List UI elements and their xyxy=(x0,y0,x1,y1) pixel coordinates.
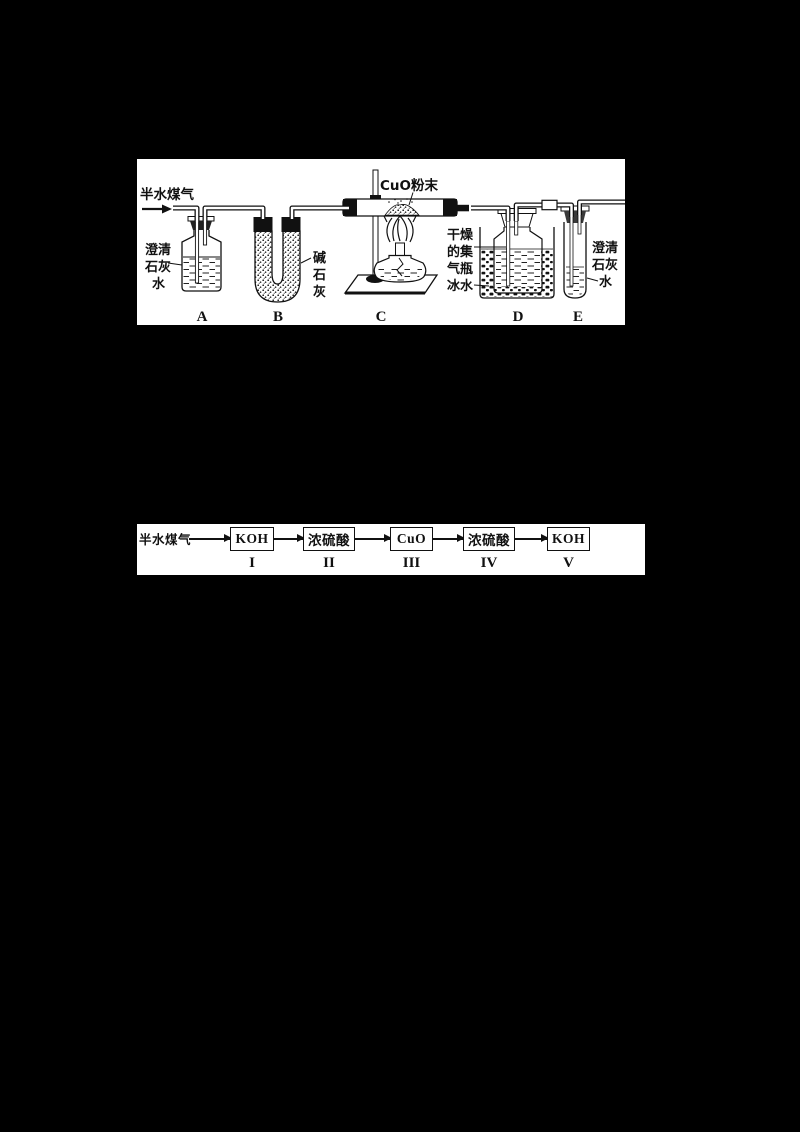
limewater-e xyxy=(566,267,584,296)
label-b-pointer xyxy=(301,258,311,263)
reaction-tube-right-stopper xyxy=(443,199,457,216)
flow-box-4-h2so4: 浓硫酸 xyxy=(463,527,515,551)
alcohol-lamp xyxy=(374,216,426,282)
vessel-b-u-tube: 碱 石 灰 B xyxy=(254,217,327,325)
reaction-tube-outlet-stub xyxy=(457,205,469,212)
vessel-a-gas-washing-bottle: 澄清 石灰 水 A xyxy=(144,217,221,326)
label-a-line3: 水 xyxy=(152,276,166,292)
label-b-line3: 灰 xyxy=(313,284,326,300)
flow-step-numeral-1: I xyxy=(230,555,274,572)
label-b-line2: 石 xyxy=(312,268,326,283)
flow-arrow-3 xyxy=(355,538,390,540)
u-tube-right-stopper xyxy=(282,217,301,232)
apparatus-figure: 半水煤气 澄清 石灰 水 A xyxy=(137,159,625,325)
flow-input-label: 半水煤气 xyxy=(139,529,191,548)
page-background: 半水煤气 澄清 石灰 水 A xyxy=(0,0,800,1132)
tube-joint-connector xyxy=(542,200,557,209)
flow-arrow-4 xyxy=(433,538,463,540)
gas-inlet-arrow-icon xyxy=(142,205,172,214)
flow-box-1-koh: KOH xyxy=(230,527,274,551)
label-a-line2: 石灰 xyxy=(144,259,171,275)
label-d-line2: 的集 xyxy=(447,244,474,260)
label-e-pointer xyxy=(587,278,598,281)
bottle-a-stopper-cap xyxy=(188,217,214,222)
vessel-e-test-tube: 澄清 石灰 水 E xyxy=(561,206,618,325)
bottle-d-long-tube xyxy=(507,221,510,286)
flow-arrow-2 xyxy=(274,538,303,540)
ice-bottom xyxy=(481,287,554,297)
flow-box-2-h2so4: 浓硫酸 xyxy=(303,527,355,551)
label-e-line3: 水 xyxy=(599,274,613,290)
flow-box-3-cuo: CuO xyxy=(390,527,433,551)
flow-step-numeral-4: IV xyxy=(463,555,515,572)
flow-diagram-panel: 半水煤气 KOH 浓硫酸 CuO 浓硫酸 KOH I II III IV V xyxy=(137,524,645,575)
bottle-a-short-tube xyxy=(203,221,206,245)
flow-step-numeral-2: II xyxy=(303,555,355,572)
flow-step-numeral-5: V xyxy=(547,555,590,572)
vessel-e-letter: E xyxy=(573,309,583,325)
vessel-b-letter: B xyxy=(273,309,283,325)
label-d-line4: 冰水 xyxy=(447,278,474,294)
label-b-line1: 碱 xyxy=(313,250,326,266)
vessel-c-letter: C xyxy=(376,309,387,325)
vessel-d-letter: D xyxy=(513,309,524,325)
flow-step-numeral-3: III xyxy=(390,555,433,572)
gas-inlet-label: 半水煤气 xyxy=(140,186,194,203)
flow-arrow-5 xyxy=(515,538,547,540)
label-e-line2: 石灰 xyxy=(591,257,618,273)
stand-clamp-jaw xyxy=(370,195,381,199)
flow-box-5-koh: KOH xyxy=(547,527,590,551)
bottle-d-short-tube xyxy=(515,221,518,235)
vessel-d-bottle-in-ice-beaker: 干燥 的集 气瓶 冰水 D xyxy=(447,209,554,326)
flame-icon xyxy=(384,216,416,242)
tube-e-stopper xyxy=(564,211,586,223)
ice-water xyxy=(496,249,540,287)
u-tube-body xyxy=(255,231,300,302)
iron-stand-rod xyxy=(373,170,378,275)
label-a-line1: 澄清 xyxy=(145,242,171,258)
tube-e-long-tube xyxy=(570,211,573,286)
lamp-wick-holder xyxy=(396,243,405,256)
bottle-a-long-tube xyxy=(195,221,198,283)
u-tube-left-stopper xyxy=(254,217,273,232)
label-d-line1: 干燥 xyxy=(447,227,474,243)
bottle-a-stopper xyxy=(190,221,212,230)
limewater-a xyxy=(183,257,220,290)
label-e-line1: 澄清 xyxy=(592,240,618,256)
label-d-line3: 气瓶 xyxy=(447,261,473,277)
flow-arrow-1 xyxy=(189,538,230,540)
apparatus-diagram-panel: 半水煤气 澄清 石灰 水 A xyxy=(137,159,625,325)
vessel-a-letter: A xyxy=(197,309,208,325)
label-c-cuo-powder: CuO粉末 xyxy=(380,177,438,194)
